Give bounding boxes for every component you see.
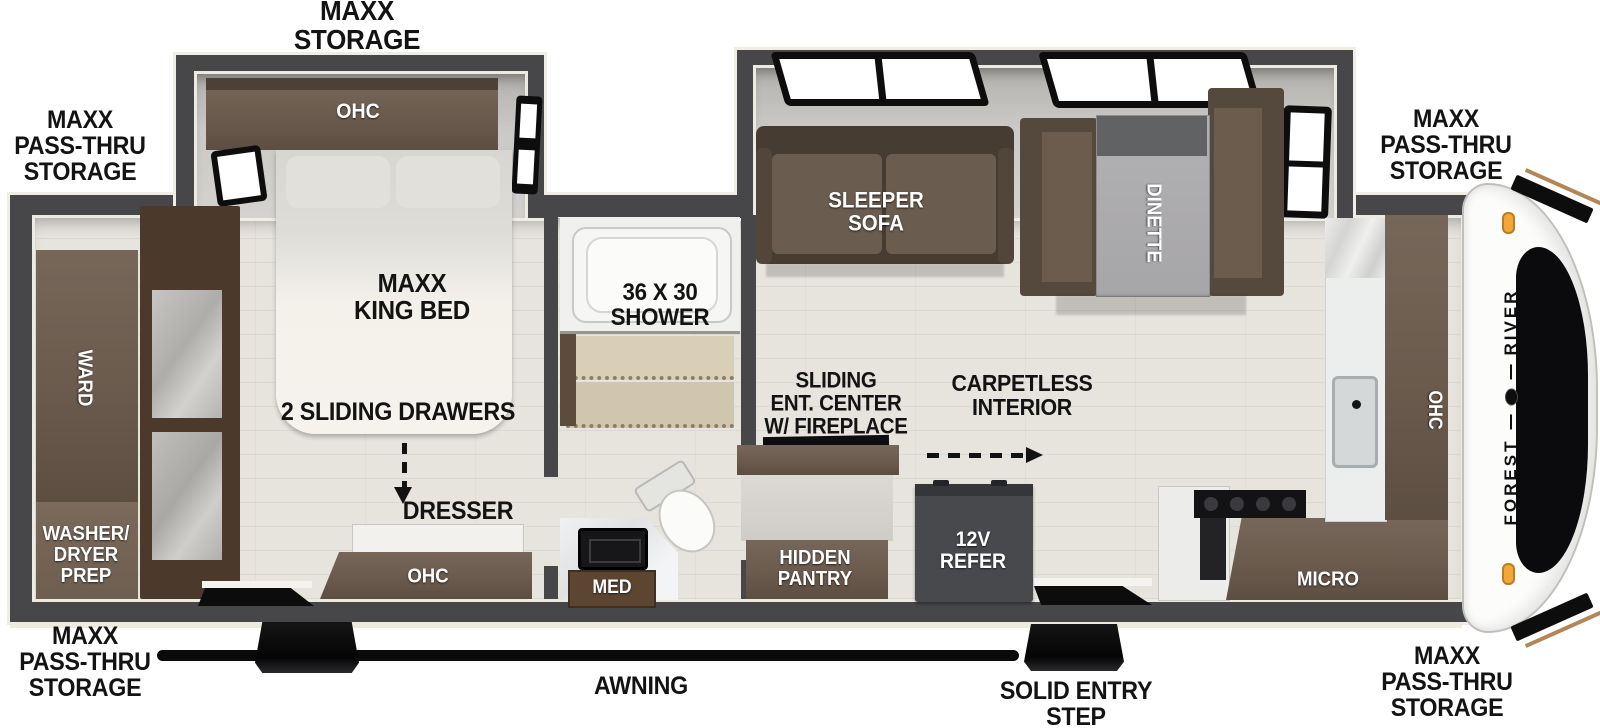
- slide-direction-arrow-icon: [927, 453, 1027, 458]
- label-ward: WARD: [73, 350, 94, 407]
- label-micro: MICRO: [1297, 569, 1359, 590]
- bathroom-wall-right-upper: [741, 215, 756, 470]
- label-ent-center: SLIDING ENT. CENTER W/ FIREPLACE: [764, 370, 907, 439]
- bathroom-wall-left-upper: [544, 215, 558, 477]
- bath-shelf-upper: [566, 336, 734, 380]
- label-dresser-ohc: OHC: [407, 566, 448, 587]
- main-entry-threshold: [1034, 578, 1152, 586]
- label-hidden-pantry: HIDDEN PANTRY: [778, 548, 852, 590]
- ent-center-cabinet: [737, 445, 899, 475]
- rear-entry-step: [255, 622, 359, 673]
- forest-river-logo-icon: [1505, 389, 1518, 406]
- kitchen-front-window: [1280, 105, 1332, 219]
- label-passthru-top-left: MAXX PASS-THRU STORAGE: [14, 107, 145, 185]
- label-maxx-storage-top: MAXX STORAGE: [294, 0, 420, 54]
- label-shower: 36 X 30 SHOWER: [611, 281, 710, 331]
- label-med: MED: [592, 578, 631, 598]
- kitchen-faucet-dot: [1352, 400, 1361, 409]
- kitchen-counter-marble: [1325, 218, 1385, 278]
- kitchen-oven-front: [1200, 518, 1226, 580]
- brand-divider-icon: [1510, 365, 1512, 380]
- label-carpetless: CARPETLESS INTERIOR: [951, 372, 1092, 420]
- bedroom-window-left: [210, 145, 267, 207]
- dinette-window-left: [770, 52, 989, 106]
- bed-pillow-right: [396, 156, 500, 208]
- bath-shelf-lower: [566, 382, 734, 428]
- label-sleeper-sofa: SLEEPER SOFA: [828, 189, 924, 236]
- label-washer-dryer: WASHER/ DRYER PREP: [43, 524, 130, 588]
- vanity-sink: [578, 528, 648, 570]
- dinette-bench-right: [1208, 88, 1284, 296]
- sofa-shadow: [766, 263, 1004, 277]
- label-bedroom-ohc: OHC: [336, 101, 379, 123]
- label-kitchen-ohc: OHC: [1424, 390, 1444, 429]
- label-passthru-top-right: MAXX PASS-THRU STORAGE: [1380, 106, 1511, 184]
- dinette-bench-left: [1020, 118, 1098, 296]
- front-cap: FOREST RIVER: [1462, 183, 1598, 633]
- floorplan-canvas: FOREST RIVER MAXX STORAGE MAXX PASS-THRU…: [0, 0, 1600, 728]
- label-awning: AWNING: [594, 673, 688, 699]
- slide-direction-arrowhead-icon: [1026, 447, 1043, 463]
- wall-top-mid: [544, 195, 740, 217]
- label-dresser: DRESSER: [403, 498, 513, 524]
- bath-shelf-post: [560, 334, 576, 426]
- bathroom-wall-left-lower: [544, 566, 558, 599]
- label-king-bed: MAXX KING BED: [354, 270, 470, 324]
- kitchen-range: [1194, 490, 1306, 518]
- windshield: [1516, 247, 1588, 573]
- cap-marker-light-top: [1502, 212, 1515, 234]
- bed-pillow-left: [286, 156, 390, 208]
- solid-entry-step: [1024, 624, 1124, 671]
- exterior-bottom-trim: [10, 622, 1462, 628]
- mirror-wardrobe: [140, 206, 240, 599]
- kitchen-ohc-cabinet: [1385, 215, 1448, 520]
- bedroom-entry-threshold: [202, 581, 312, 588]
- label-refer: 12V REFER: [940, 529, 1006, 574]
- shower-glass: [560, 331, 740, 334]
- label-dinette: DINETTE: [1142, 183, 1163, 263]
- dinette-base-shadow: [1056, 295, 1246, 315]
- brand-word-second: RIVER: [1501, 289, 1521, 356]
- label-passthru-bottom-left: MAXX PASS-THRU STORAGE: [19, 623, 150, 701]
- brand-logo: FOREST RIVER: [1501, 289, 1521, 526]
- label-solid-entry-step: SOLID ENTRY STEP: [1000, 678, 1152, 728]
- sliding-drawers-arrow-icon: [402, 443, 407, 487]
- label-sliding-drawers: 2 SLIDING DRAWERS: [281, 399, 515, 425]
- brand-word-first: FOREST: [1501, 439, 1521, 526]
- label-passthru-bottom-right: MAXX PASS-THRU STORAGE: [1381, 643, 1512, 721]
- cap-marker-light-bottom: [1502, 563, 1515, 585]
- kitchen-sink: [1332, 376, 1378, 468]
- ent-center-base: [741, 475, 893, 541]
- bedroom-overhead-cabinet-top-edge: [206, 78, 498, 90]
- brand-divider-icon: [1510, 415, 1512, 430]
- bedroom-window-right: [511, 95, 542, 194]
